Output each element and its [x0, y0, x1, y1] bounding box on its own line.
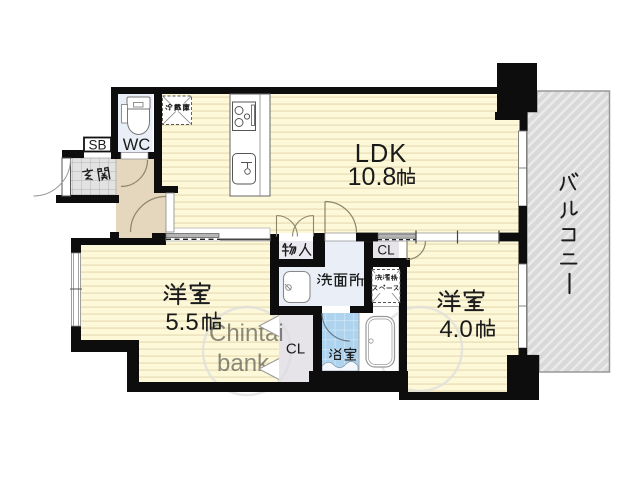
svg-text:WC: WC	[123, 136, 151, 154]
svg-text:4.0: 4.0	[439, 316, 472, 343]
svg-text:5.5: 5.5	[165, 309, 198, 336]
svg-text:CL: CL	[286, 341, 305, 358]
svg-text:10.8: 10.8	[348, 163, 397, 191]
svg-text:CL: CL	[377, 243, 395, 258]
svg-text:bank: bank	[217, 350, 270, 377]
svg-text:SB: SB	[88, 138, 106, 153]
